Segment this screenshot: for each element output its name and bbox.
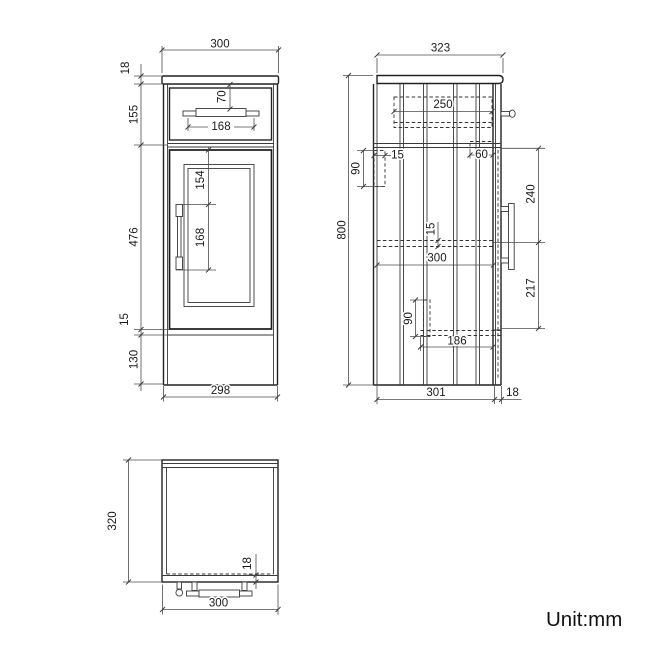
plan-side-knob (176, 582, 183, 596)
dim-side-back-bracket-width: 15 (391, 150, 404, 162)
dim-side-handle-bottom: 217 (526, 278, 538, 297)
dim-front-width-top: 300 (210, 39, 229, 51)
side-view: 323 800 250 60 90 15 15 3 (337, 43, 546, 405)
dim-front-door-handle-drop: 154 (195, 170, 207, 190)
plan-door-handle (187, 582, 253, 597)
dim-plan-door-thickness: 18 (242, 557, 254, 570)
front-view: 300 18 155 476 15 130 298 70 168 154 (119, 39, 281, 402)
front-door-handle (176, 205, 183, 270)
dim-side-front-bracket-height: 90 (403, 312, 415, 325)
side-top-rail-hidden (470, 142, 493, 148)
dim-front-plinth-height: 130 (129, 350, 141, 369)
unit-note: Unit:mm (546, 608, 622, 631)
plan-outline (162, 460, 278, 582)
technical-drawing: 300 18 155 476 15 130 298 70 168 154 (0, 0, 650, 650)
dim-side-height: 800 (337, 220, 349, 239)
dim-side-door-thickness: 18 (506, 387, 519, 399)
dim-plan-width: 300 (209, 598, 228, 610)
plan-view-body-lines (162, 460, 278, 597)
dim-side-top-rail: 60 (475, 149, 488, 161)
dim-side-handle-top: 240 (526, 184, 538, 203)
plan-view: 320 18 300 (107, 458, 281, 615)
dim-side-body-depth: 301 (426, 387, 445, 399)
dim-side-back-bracket-height: 90 (351, 162, 363, 175)
dim-side-shelf-depth: 300 (427, 253, 446, 265)
side-countertop (377, 76, 503, 84)
dim-plan-depth: 320 (107, 511, 119, 530)
dim-front-door-height: 476 (129, 227, 141, 246)
dim-side-drawer-depth: 250 (433, 99, 452, 111)
dim-side-shelf-thickness: 15 (426, 223, 438, 236)
dim-front-bottom-gap: 15 (119, 313, 131, 326)
dim-front-counter-thickness: 18 (120, 62, 132, 75)
side-view-body-lines (374, 76, 516, 386)
front-countertop (162, 76, 279, 84)
dim-side-depth-top: 323 (431, 43, 450, 55)
dim-front-handle-span: 168 (211, 121, 230, 133)
dim-side-bottom-rail: 186 (447, 336, 466, 348)
dim-front-drawer-height: 155 (129, 105, 141, 124)
dim-front-handle-drop: 70 (217, 90, 229, 103)
dim-front-width-bottom: 298 (211, 385, 230, 397)
side-door-handle (501, 204, 514, 270)
dim-front-door-handle-span: 168 (195, 228, 207, 247)
side-drawer-knob (501, 110, 515, 117)
